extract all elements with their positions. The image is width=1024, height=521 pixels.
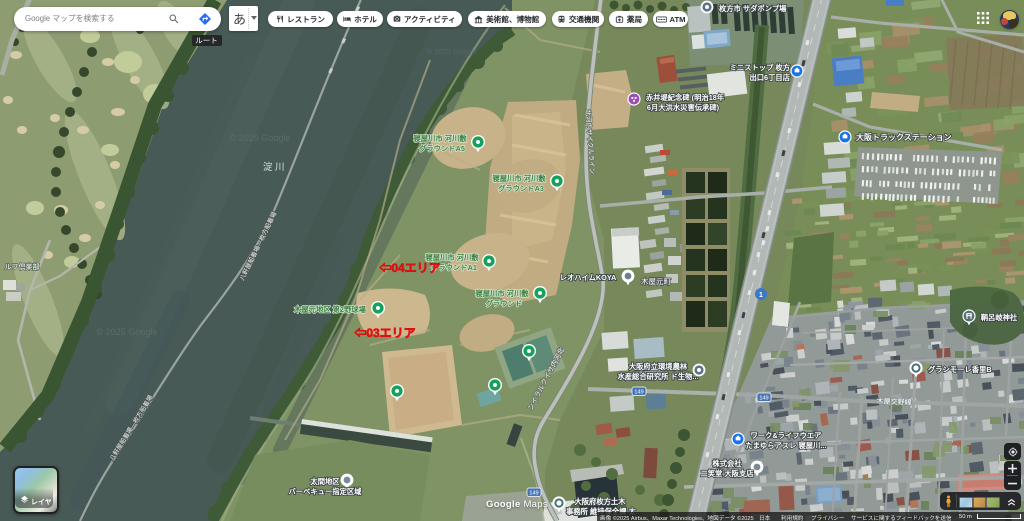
svg-text:149: 149 — [634, 390, 643, 396]
svg-text:木屋元町: 木屋元町 — [641, 276, 671, 286]
svg-text:ルフ倶楽部: ルフ倶楽部 — [5, 262, 40, 271]
svg-text:太間地区: 太間地区 — [309, 477, 340, 486]
svg-text:赤井堤紀念碑 (明治18年: 赤井堤紀念碑 (明治18年 — [646, 93, 725, 102]
svg-text:寝屋川市 河川敷: 寝屋川市 河川敷 — [475, 289, 529, 298]
svg-text:水産総合研究所 ド生物...: 水産総合研究所 ド生物... — [617, 372, 698, 381]
svg-text:枚方市 サダポンプ場: 枚方市 サダポンプ場 — [719, 4, 787, 13]
svg-text:グラウンド: グラウンド — [486, 299, 522, 308]
svg-text:寝屋川市 河川敷: 寝屋川市 河川敷 — [413, 134, 467, 143]
svg-text:1: 1 — [759, 292, 763, 299]
svg-text:たまゆらアスレ 寝屋川...: たまゆらアスレ 寝屋川... — [746, 441, 827, 450]
svg-text:二笑堂 大阪支店: 二笑堂 大阪支店 — [700, 469, 754, 478]
svg-text:出口6丁目店: 出口6丁目店 — [749, 73, 790, 82]
svg-text:大阪府立環境農林: 大阪府立環境農林 — [629, 362, 688, 371]
svg-text:グラウンドA3: グラウンドA3 — [498, 184, 544, 193]
svg-text:鞆呂岐神社: 鞆呂岐神社 — [981, 313, 1018, 322]
svg-text:149: 149 — [759, 396, 768, 402]
svg-text:グラウンドA5: グラウンドA5 — [419, 144, 465, 153]
svg-text:ワーク&ライフウエア: ワーク&ライフウエア — [751, 431, 822, 440]
svg-text:淀川: 淀川 — [263, 161, 287, 173]
svg-text:バーベキュー指定区域: バーベキュー指定区域 — [289, 487, 363, 496]
svg-text:© 2025 Google: © 2025 Google — [230, 133, 291, 143]
svg-text:寝屋川市 河川敷: 寝屋川市 河川敷 — [492, 174, 546, 183]
svg-text:6月大洪水災害伝承碑): 6月大洪水災害伝承碑) — [647, 103, 720, 112]
svg-text:株式会社: 株式会社 — [712, 459, 742, 468]
svg-text:⇦03エリア: ⇦03エリア — [354, 326, 415, 340]
svg-text:大阪府枚方土木: 大阪府枚方土木 — [574, 497, 626, 506]
svg-text:© 2025 Google: © 2025 Google — [427, 47, 478, 56]
svg-text:149: 149 — [529, 491, 538, 497]
svg-text:レオハイムKOYA: レオハイムKOYA — [560, 273, 617, 282]
svg-text:⇦04エリア: ⇦04エリア — [379, 261, 440, 275]
svg-text:木屋元地区 第2野球場: 木屋元地区 第2野球場 — [293, 305, 366, 314]
svg-text:© 2025 Google: © 2025 Google — [97, 327, 158, 337]
svg-text:大阪トラックステーション: 大阪トラックステーション — [856, 132, 952, 142]
svg-text:グランモーレ香里B: グランモーレ香里B — [928, 365, 992, 374]
svg-text:ミニストップ 枚方: ミニストップ 枚方 — [730, 63, 790, 72]
